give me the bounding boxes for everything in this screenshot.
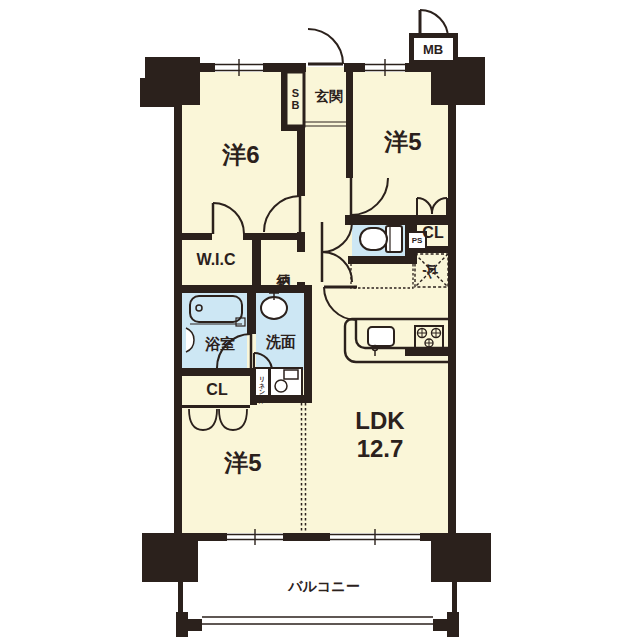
room-label-western5-upper: 洋5 (384, 130, 421, 154)
room-label-closet-upper: CL (422, 225, 443, 241)
room-label-shoe-box: SB (290, 87, 301, 111)
railing-bracket-left (176, 612, 188, 637)
left-outer-wall (174, 105, 182, 533)
railing-bracket-right2 (433, 619, 447, 631)
toilet-icon (360, 226, 402, 252)
room-label-wic: W.I.C (196, 252, 235, 268)
right-outer-wall (448, 105, 456, 533)
washing-machine-pan-icon (270, 368, 302, 396)
pillar-bottom-left (142, 533, 198, 582)
room-label-meter-box: MB (423, 43, 443, 56)
balcony-railing (202, 617, 433, 624)
room-label-western5-lower: 洋5 (224, 451, 261, 475)
room-label-bathroom: 浴室 (205, 336, 235, 351)
room-label-closet-lower: CL (206, 382, 227, 398)
railing-bracket-right (447, 612, 459, 637)
railing-bracket-left2 (188, 619, 202, 631)
pillar-top-left-ext (140, 78, 174, 107)
room-label-ldk-area: 12.7 (357, 437, 404, 461)
room-label-western6: 洋6 (222, 143, 259, 167)
pillar-bottom-right (431, 533, 491, 582)
room-label-washroom: 洗面 (266, 334, 296, 349)
room-label-balcony: バルコニー (288, 579, 359, 593)
room-label-entrance: 玄関 (315, 89, 343, 103)
room-label-ldk: LDK (355, 409, 404, 433)
kitchen-sink-icon (368, 327, 394, 346)
room-label-linen: リネン庫 (259, 372, 265, 393)
pillar-top-right (431, 57, 485, 105)
floor-plan-page: { "plan": { "type": "apartment-floor-pla… (0, 0, 640, 640)
entrance-door-arc (308, 29, 343, 64)
room-label-pipe-space: PS (412, 237, 423, 245)
